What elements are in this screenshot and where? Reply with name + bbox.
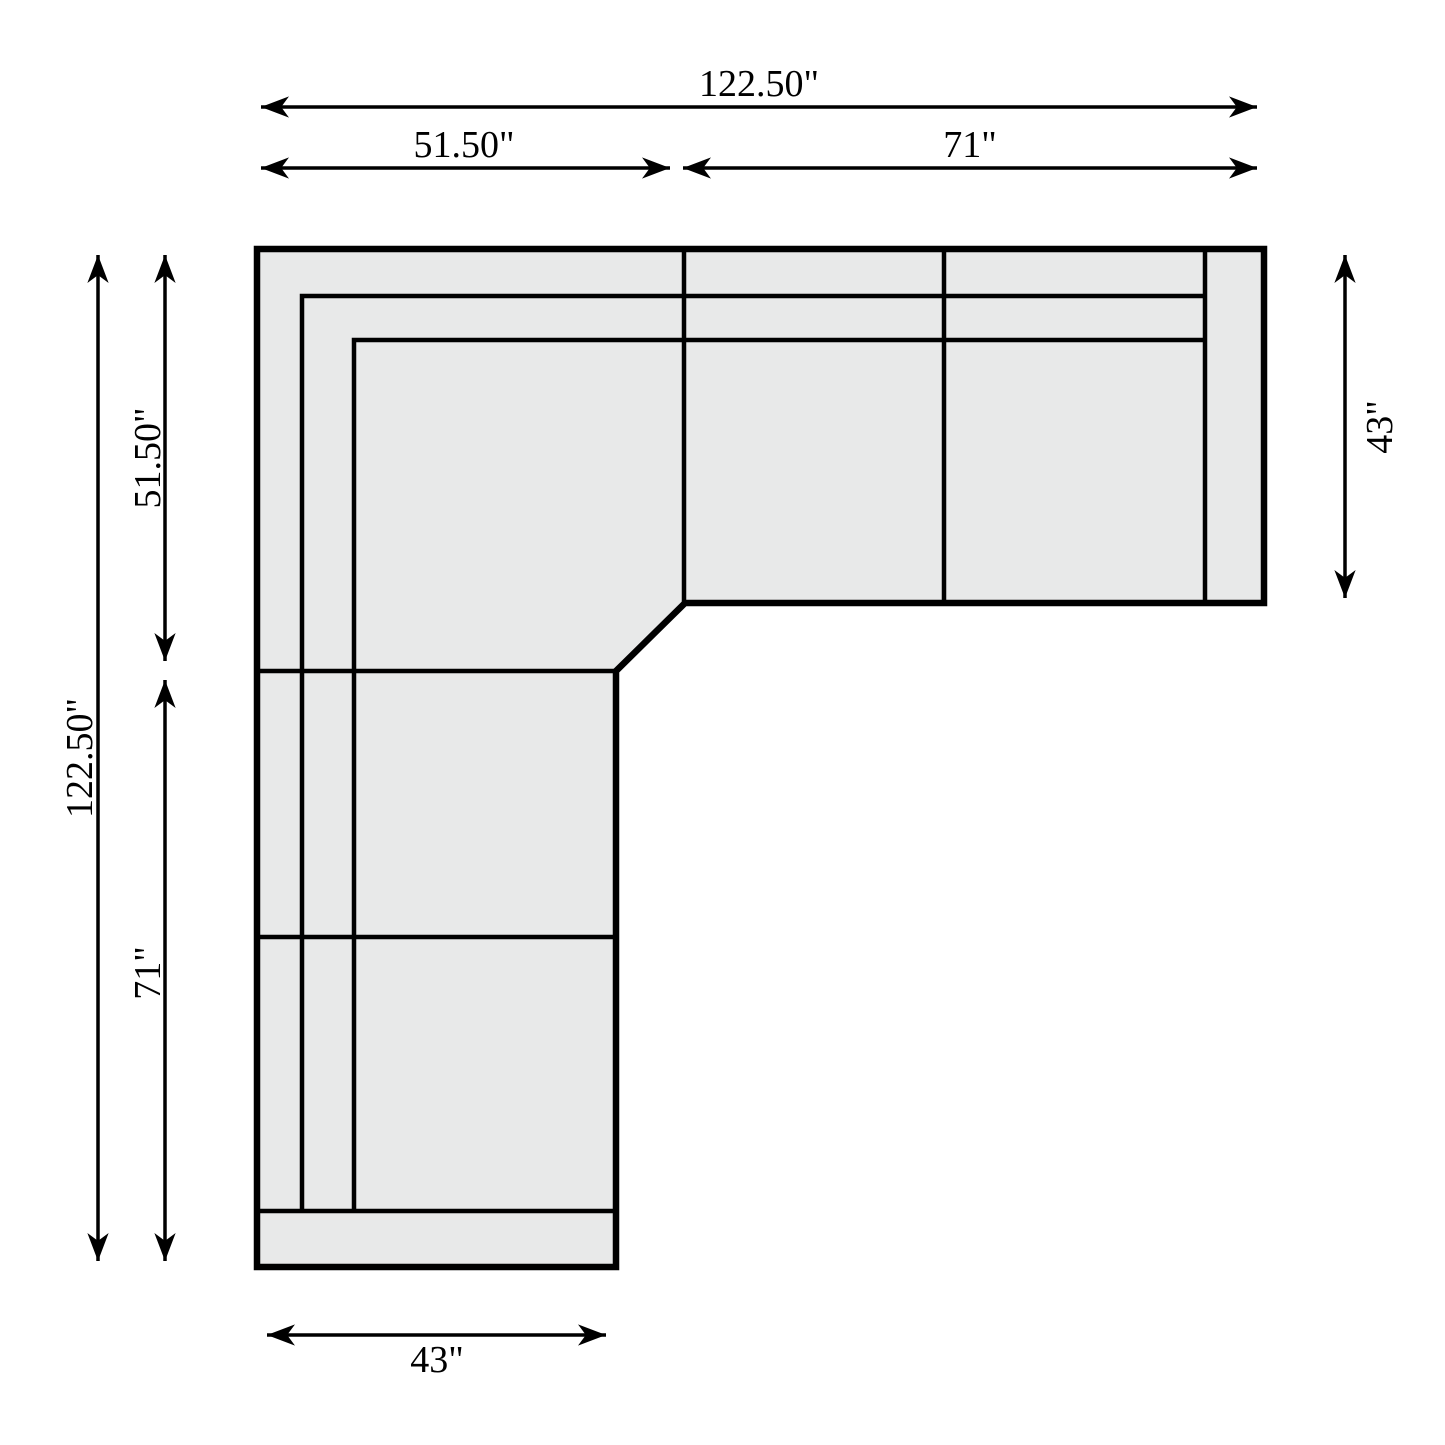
label-sofa-run-depth: 43" [1359, 400, 1401, 454]
sofa-floorplan-diagram: 122.50" 51.50" 71" 122.50" 51.50" 71" 43… [0, 0, 1445, 1445]
sofa-outline [257, 249, 1264, 1267]
label-right-run-width: 71" [943, 124, 997, 166]
label-corner-width: 51.50" [413, 124, 514, 166]
sofa-body [257, 249, 1264, 1267]
label-corner-depth: 51.50" [127, 407, 169, 508]
label-overall-depth: 122.50" [59, 698, 101, 818]
label-left-leg-width: 43" [410, 1339, 464, 1381]
label-left-run-depth: 71" [127, 946, 169, 1000]
label-overall-width: 122.50" [699, 63, 819, 105]
